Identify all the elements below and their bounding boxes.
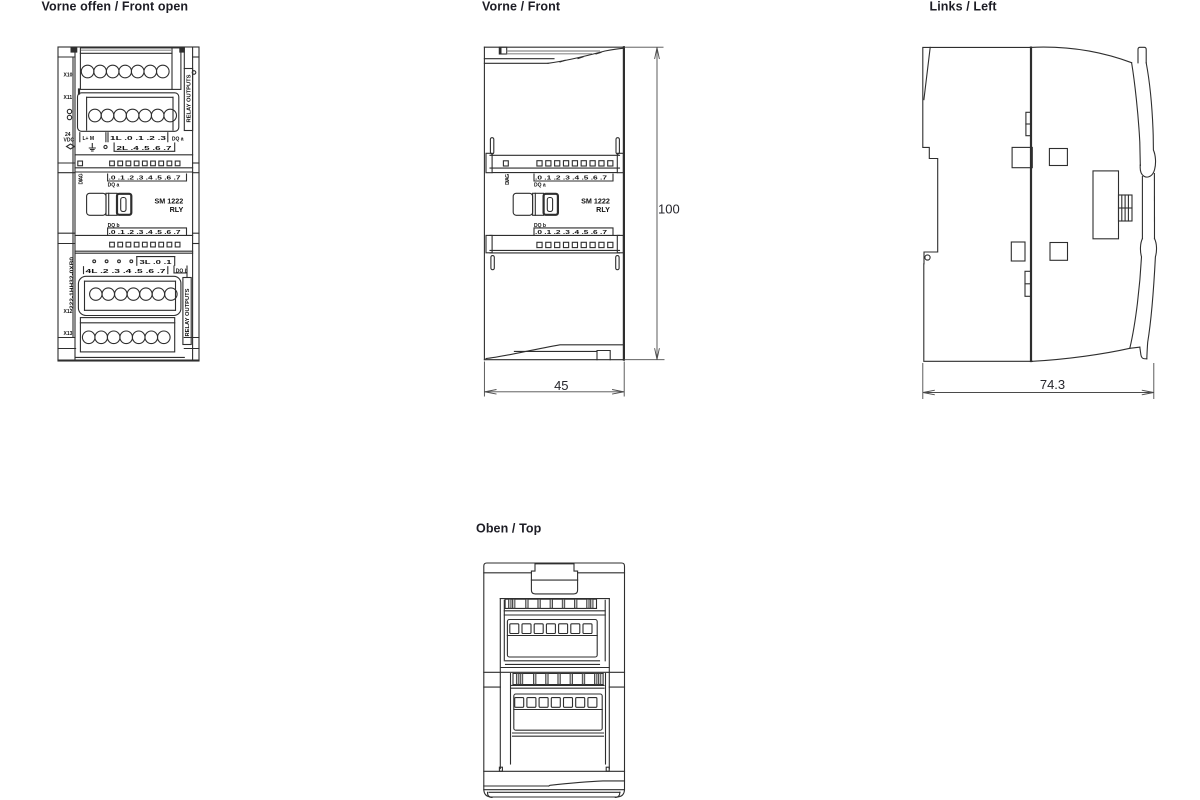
svg-text:DQ a: DQ a xyxy=(172,137,184,143)
svg-text:Vorne offen / Front open: Vorne offen / Front open xyxy=(42,0,189,13)
svg-text:DQ a: DQ a xyxy=(534,183,546,189)
svg-text:74.3: 74.3 xyxy=(1040,377,1065,392)
svg-text:4L .2 .3 .4 .5 .6 .7: 4L .2 .3 .4 .5 .6 .7 xyxy=(86,269,166,275)
svg-text:.0 .1 .2 .3 .4 .5 .6 .7: .0 .1 .2 .3 .4 .5 .6 .7 xyxy=(535,176,607,182)
svg-text:X11: X11 xyxy=(64,95,73,101)
svg-text:1L .0 .1 .2 .3: 1L .0 .1 .2 .3 xyxy=(110,136,166,142)
svg-text:3L .0 .1: 3L .0 .1 xyxy=(140,260,172,266)
svg-text:X12: X12 xyxy=(64,309,73,315)
svg-text:RELAY OUTPUTS: RELAY OUTPUTS xyxy=(187,74,193,123)
svg-text:Vorne / Front: Vorne / Front xyxy=(482,0,561,13)
svg-text:X13: X13 xyxy=(64,331,73,337)
svg-text:Oben / Top: Oben / Top xyxy=(476,522,542,536)
svg-text:.0 .1 .2 .3 .4 .5 .6 .7: .0 .1 .2 .3 .4 .5 .6 .7 xyxy=(109,176,181,182)
svg-text:222-1HH32-0XB0: 222-1HH32-0XB0 xyxy=(70,257,76,309)
svg-text:L+ M: L+ M xyxy=(83,136,95,142)
svg-text:100: 100 xyxy=(658,202,680,217)
svg-text:Links / Left: Links / Left xyxy=(930,0,998,13)
svg-text:DQ a: DQ a xyxy=(108,183,120,189)
svg-text:VDC: VDC xyxy=(64,138,75,144)
svg-text:45: 45 xyxy=(554,378,568,393)
svg-text:RLY: RLY xyxy=(596,205,610,214)
svg-text:X10: X10 xyxy=(64,73,73,79)
svg-text:RLY: RLY xyxy=(170,205,184,214)
svg-text:DIAG: DIAG xyxy=(505,174,511,185)
svg-text:DIAG: DIAG xyxy=(79,173,85,184)
svg-text:RELAY OUTPUTS: RELAY OUTPUTS xyxy=(185,288,191,337)
